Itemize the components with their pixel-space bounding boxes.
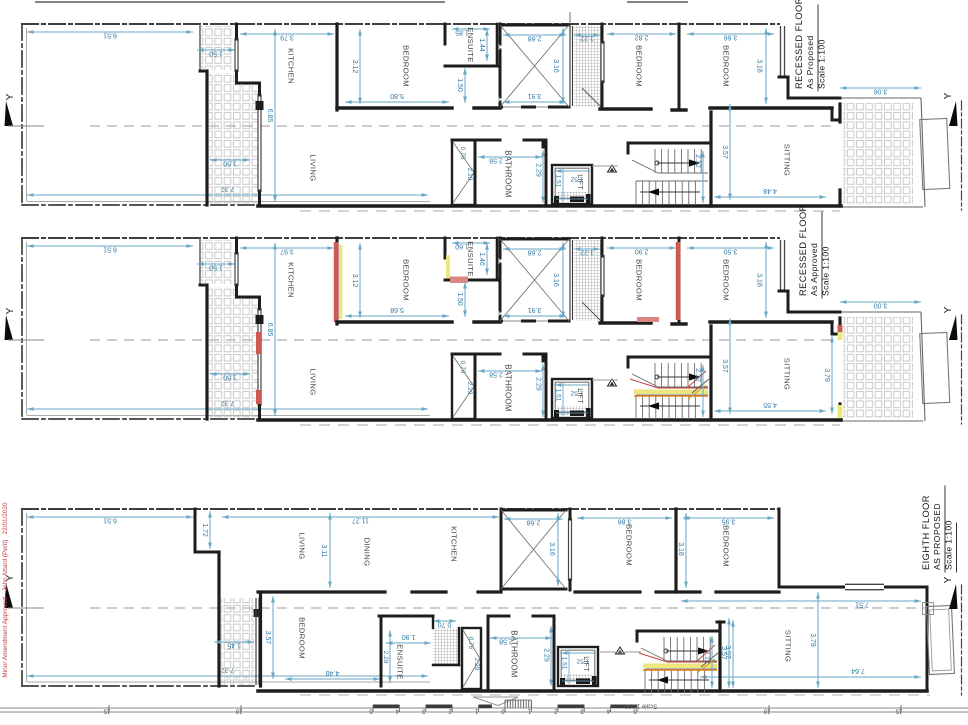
svg-text:6.51: 6.51	[103, 246, 117, 253]
svg-text:1.44: 1.44	[478, 38, 485, 52]
svg-text:3.12: 3.12	[351, 60, 358, 74]
svg-text:3.57: 3.57	[721, 145, 728, 159]
svg-text:6.85: 6.85	[266, 323, 273, 337]
svg-text:1.51: 1.51	[555, 175, 562, 188]
svg-text:BEDROOM: BEDROOM	[625, 524, 634, 566]
svg-text:3.57: 3.57	[264, 631, 271, 645]
svg-text:Y: Y	[5, 307, 16, 314]
svg-text:1.51: 1.51	[555, 389, 562, 402]
svg-text:2.90: 2.90	[635, 248, 649, 255]
svg-text:0.76: 0.76	[459, 147, 466, 160]
svg-text:KITCHEN: KITCHEN	[450, 526, 459, 562]
svg-text:BATHROOM: BATHROOM	[510, 630, 519, 677]
svg-text:BEDROOM: BEDROOM	[635, 45, 644, 87]
svg-text:2.29: 2.29	[466, 382, 473, 395]
svg-text:EIGHTH FLOOR: EIGHTH FLOOR	[921, 495, 931, 570]
svg-text:3.91: 3.91	[528, 306, 542, 313]
svg-text:2.58: 2.58	[499, 638, 513, 645]
svg-text:BEDROOM: BEDROOM	[722, 259, 731, 301]
svg-text:AS PROPOSED: AS PROPOSED	[932, 503, 942, 570]
svg-text:3.06: 3.06	[874, 88, 888, 95]
svg-text:2.29: 2.29	[535, 377, 542, 391]
svg-text:0.76: 0.76	[459, 361, 466, 374]
svg-text:ENSUITE: ENSUITE	[466, 27, 475, 62]
svg-text:3.18: 3.18	[756, 59, 763, 73]
svg-text:10: 10	[763, 708, 770, 714]
svg-text:BEDROOM: BEDROOM	[402, 259, 411, 301]
svg-text:3.79: 3.79	[809, 633, 816, 647]
svg-text:ENSUITE: ENSUITE	[466, 241, 475, 276]
svg-text:1.50: 1.50	[209, 50, 223, 57]
svg-text:1.45: 1.45	[227, 642, 241, 649]
svg-text:7.51: 7.51	[855, 601, 869, 608]
svg-text:1.51: 1.51	[561, 657, 568, 670]
svg-text:1.72: 1.72	[201, 523, 208, 537]
svg-text:2.29: 2.29	[543, 648, 550, 662]
svg-text:1.50: 1.50	[456, 292, 463, 306]
svg-text:0.76: 0.76	[467, 637, 474, 650]
svg-text:2.29: 2.29	[382, 651, 389, 664]
svg-text:SITTING: SITTING	[783, 144, 792, 176]
svg-text:3.66: 3.66	[724, 34, 738, 41]
svg-text:3.16: 3.16	[552, 273, 559, 287]
svg-text:As Proposed: As Proposed	[805, 35, 815, 89]
svg-text:2.12: 2.12	[694, 154, 701, 168]
svg-text:3.11: 3.11	[320, 544, 327, 557]
svg-text:2.29: 2.29	[535, 163, 542, 177]
svg-text:2.12: 2.12	[703, 650, 710, 664]
svg-text:2.68: 2.68	[528, 35, 542, 42]
svg-text:2.29: 2.29	[466, 168, 473, 181]
svg-text:DINING: DINING	[363, 538, 372, 567]
svg-text:6.85: 6.85	[266, 109, 273, 123]
svg-text:As Approved: As Approved	[809, 243, 819, 296]
svg-text:1.50: 1.50	[223, 160, 237, 167]
svg-text:Scale 1:100: Scale 1:100	[821, 246, 831, 296]
svg-text:Y: Y	[5, 93, 16, 100]
svg-text:Minor Amendment Approved - Joh: Minor Amendment Approved - John Attard (…	[2, 502, 9, 678]
svg-text:6.51: 6.51	[103, 32, 117, 39]
svg-text:10: 10	[235, 708, 242, 714]
svg-text:2.82: 2.82	[635, 34, 649, 41]
svg-text:2.12: 2.12	[694, 368, 701, 382]
svg-text:2.68: 2.68	[527, 519, 541, 526]
svg-text:BEDROOM: BEDROOM	[722, 45, 731, 87]
svg-text:Scale 1:100: Scale 1:100	[817, 39, 827, 89]
svg-text:1.22: 1.22	[580, 249, 594, 256]
svg-text:LIVING: LIVING	[298, 532, 307, 559]
svg-text:3.57: 3.57	[724, 645, 731, 659]
svg-text:3.00: 3.00	[874, 302, 888, 309]
svg-text:1.50: 1.50	[456, 78, 463, 92]
svg-text:1.50: 1.50	[209, 264, 223, 271]
svg-text:LIFT: LIFT	[582, 656, 589, 672]
svg-text:5.80: 5.80	[390, 92, 404, 99]
svg-text:2.58: 2.58	[489, 157, 503, 164]
svg-text:3.50: 3.50	[724, 248, 738, 255]
svg-text:4.48: 4.48	[326, 669, 340, 676]
svg-text:0.70: 0.70	[438, 621, 452, 628]
svg-text:KITCHEN: KITCHEN	[287, 262, 296, 298]
svg-text:Scale 1:100: Scale 1:100	[624, 703, 657, 710]
svg-text:15: 15	[895, 708, 902, 714]
svg-text:BEDROOM: BEDROOM	[402, 45, 411, 87]
svg-text:Y: Y	[943, 92, 954, 99]
svg-text:6.51: 6.51	[103, 517, 117, 524]
svg-text:3.18: 3.18	[677, 542, 684, 556]
svg-text:4.48: 4.48	[763, 187, 777, 194]
svg-text:1.22: 1.22	[580, 35, 594, 42]
svg-text:RECESSED FLOOR: RECESSED FLOOR	[798, 204, 808, 296]
svg-text:LIFT: LIFT	[576, 388, 583, 404]
svg-text:RECESSED FLOOR: RECESSED FLOOR	[794, 0, 804, 89]
svg-text:Y: Y	[943, 576, 954, 583]
svg-text:3.16: 3.16	[548, 542, 555, 556]
svg-text:3.79: 3.79	[823, 368, 830, 382]
svg-text:3.97: 3.97	[280, 248, 294, 255]
svg-text:1.50: 1.50	[223, 374, 237, 381]
svg-text:3.95: 3.95	[722, 518, 736, 525]
svg-text:11.27: 11.27	[352, 517, 369, 524]
svg-text:15: 15	[103, 708, 110, 714]
svg-text:ENSUITE: ENSUITE	[396, 644, 405, 679]
svg-text:3.18: 3.18	[756, 273, 763, 287]
svg-text:1.90: 1.90	[402, 633, 416, 640]
svg-text:2.68: 2.68	[528, 249, 542, 256]
svg-text:2.29: 2.29	[473, 658, 480, 671]
svg-text:SITTING: SITTING	[784, 630, 793, 662]
svg-text:LIFT: LIFT	[576, 174, 583, 190]
svg-text:BEDROOM: BEDROOM	[722, 525, 731, 567]
svg-text:Scale 1:100: Scale 1:100	[944, 520, 954, 570]
svg-text:Y: Y	[943, 306, 954, 313]
svg-text:SITTING: SITTING	[783, 358, 792, 390]
svg-text:LIVING: LIVING	[309, 368, 318, 395]
svg-text:5.68: 5.68	[390, 306, 404, 313]
svg-text:LIVING: LIVING	[309, 154, 318, 181]
svg-text:BEDROOM: BEDROOM	[298, 617, 307, 659]
svg-text:7.64: 7.64	[851, 667, 865, 674]
svg-text:3.12: 3.12	[351, 274, 358, 288]
svg-text:3.79: 3.79	[280, 34, 294, 41]
svg-text:2.58: 2.58	[489, 371, 503, 378]
svg-text:3.57: 3.57	[721, 359, 728, 373]
svg-text:BEDROOM: BEDROOM	[635, 259, 644, 301]
svg-text:1.46: 1.46	[478, 252, 485, 266]
svg-text:KITCHEN: KITCHEN	[287, 48, 296, 84]
svg-text:3.16: 3.16	[552, 59, 559, 73]
svg-text:3.91: 3.91	[528, 92, 542, 99]
svg-text:4.55: 4.55	[763, 401, 777, 408]
